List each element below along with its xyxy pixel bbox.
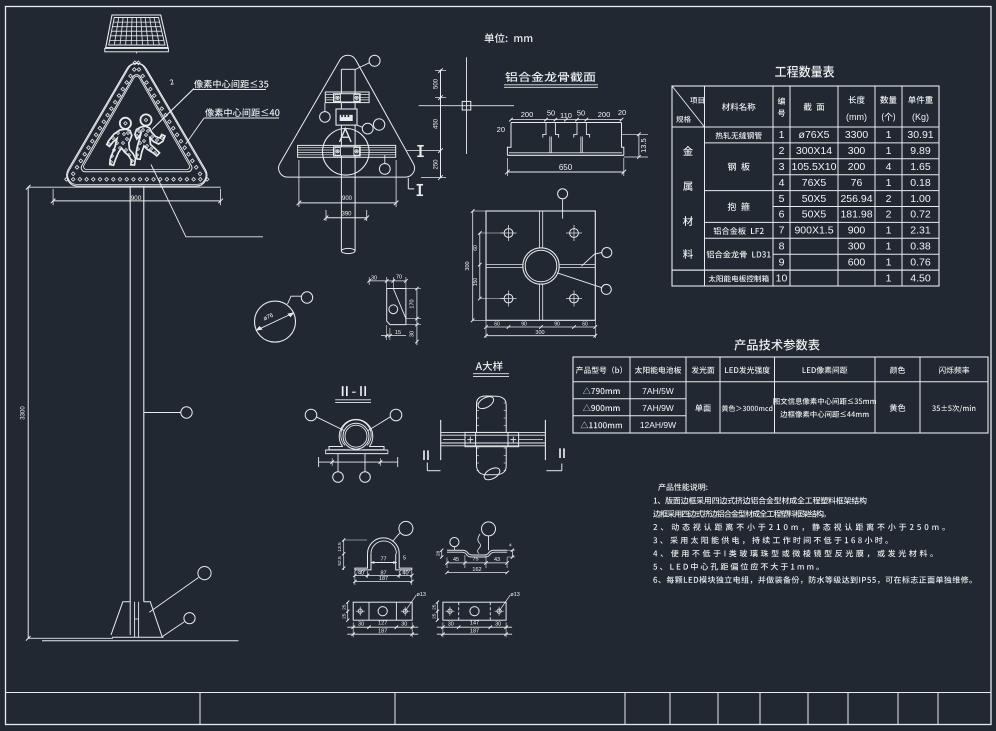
svg-text:25: 25: [342, 613, 348, 619]
svg-text:50: 50: [547, 109, 555, 118]
svg-text:2: 2: [779, 145, 785, 157]
svg-text:4: 4: [509, 543, 512, 549]
svg-text:1: 1: [886, 256, 892, 268]
svg-text:12AH/9W: 12AH/9W: [640, 420, 676, 430]
svg-text:60: 60: [494, 322, 500, 328]
svg-text:28: 28: [436, 551, 442, 557]
svg-text:147: 147: [470, 621, 479, 627]
svg-text:7: 7: [779, 225, 785, 237]
svg-text:60: 60: [582, 322, 588, 328]
svg-text:52.5: 52.5: [337, 556, 343, 566]
svg-text:187: 187: [470, 629, 479, 635]
svg-text:50X5: 50X5: [802, 193, 827, 205]
svg-text:25: 25: [431, 613, 437, 619]
svg-text:900X1.5: 900X1.5: [794, 225, 833, 237]
svg-text:2: 2: [886, 193, 892, 205]
svg-text:(Kg): (Kg): [912, 112, 929, 122]
svg-text:900: 900: [342, 196, 353, 202]
svg-text:45: 45: [453, 557, 459, 563]
svg-text:5: 5: [779, 193, 785, 205]
svg-text:30: 30: [358, 622, 364, 628]
svg-text:1: 1: [886, 177, 892, 189]
svg-text:7AH/5W: 7AH/5W: [642, 386, 674, 396]
svg-text:40: 40: [402, 571, 408, 577]
svg-text:1.00: 1.00: [910, 193, 931, 205]
svg-text:200: 200: [521, 110, 534, 119]
svg-text:43: 43: [494, 557, 500, 563]
svg-text:20: 20: [618, 108, 626, 117]
svg-text:162: 162: [472, 567, 481, 573]
svg-text:0.76: 0.76: [910, 256, 931, 268]
svg-text:900: 900: [131, 195, 142, 202]
svg-text:256.94: 256.94: [840, 193, 872, 205]
svg-text:70: 70: [396, 275, 402, 281]
svg-text:30: 30: [401, 622, 407, 628]
svg-text:500: 500: [433, 78, 439, 89]
svg-text:77: 77: [380, 557, 386, 563]
svg-text:105.5X10: 105.5X10: [792, 161, 837, 173]
svg-text:900: 900: [848, 225, 866, 237]
svg-text:170: 170: [410, 299, 416, 308]
svg-text:187: 187: [379, 576, 388, 582]
svg-text:1: 1: [886, 241, 892, 253]
svg-text:50: 50: [577, 109, 585, 118]
svg-text:7AH/9W: 7AH/9W: [642, 403, 674, 413]
svg-text:390: 390: [341, 212, 352, 218]
svg-text:4: 4: [779, 177, 785, 189]
svg-text:1: 1: [779, 129, 785, 141]
svg-text:90: 90: [554, 322, 560, 328]
svg-text:0.38: 0.38: [910, 241, 931, 253]
svg-text:90: 90: [521, 322, 527, 328]
svg-text:4.50: 4.50: [910, 272, 931, 284]
svg-text:2: 2: [886, 209, 892, 221]
svg-text:15: 15: [395, 330, 401, 336]
svg-text:450: 450: [433, 118, 439, 129]
svg-text:25: 25: [342, 604, 348, 610]
svg-text:75: 75: [472, 557, 478, 563]
svg-text:3: 3: [779, 161, 785, 173]
svg-text:(mm): (mm): [846, 112, 867, 122]
svg-text:110: 110: [560, 111, 572, 120]
svg-text:76X5: 76X5: [802, 177, 827, 189]
svg-text:50X5: 50X5: [802, 209, 827, 221]
svg-text:9: 9: [779, 256, 785, 268]
svg-text:13.5: 13.5: [639, 138, 648, 153]
svg-text:25: 25: [431, 604, 437, 610]
svg-text:200: 200: [848, 161, 866, 173]
svg-text:600: 600: [848, 256, 866, 268]
svg-text:4: 4: [886, 161, 892, 173]
svg-text:5: 5: [403, 556, 406, 562]
svg-text:150: 150: [473, 278, 479, 287]
svg-text:13.5: 13.5: [337, 542, 343, 552]
svg-text:1: 1: [886, 225, 892, 237]
svg-text:1: 1: [886, 129, 892, 141]
svg-text:250: 250: [433, 159, 439, 170]
svg-text:2.31: 2.31: [910, 225, 931, 237]
svg-text:10: 10: [776, 272, 788, 284]
svg-text:200: 200: [598, 110, 611, 119]
svg-text:40: 40: [358, 571, 364, 577]
svg-text:187: 187: [378, 629, 387, 635]
svg-text:30.91: 30.91: [907, 129, 933, 141]
svg-text:300: 300: [465, 261, 471, 270]
svg-text:ø76X5: ø76X5: [799, 129, 830, 141]
svg-text:9.89: 9.89: [910, 145, 931, 157]
svg-text:30: 30: [495, 622, 501, 628]
svg-text:3300: 3300: [21, 406, 27, 420]
svg-text:1.65: 1.65: [910, 161, 931, 173]
svg-text:1: 1: [886, 145, 892, 157]
svg-text:30: 30: [371, 276, 377, 282]
svg-text:ø13: ø13: [510, 592, 519, 598]
svg-text:1: 1: [886, 272, 892, 284]
svg-text:0.72: 0.72: [910, 209, 931, 221]
svg-text:127: 127: [378, 621, 387, 627]
svg-text:76: 76: [851, 177, 863, 189]
svg-text:30: 30: [410, 331, 416, 337]
svg-text:ø13: ø13: [416, 592, 425, 598]
svg-text:0.18: 0.18: [910, 177, 931, 189]
svg-text:650: 650: [559, 163, 573, 172]
svg-text:6: 6: [779, 209, 785, 221]
svg-text:3300: 3300: [845, 129, 869, 141]
svg-text:60: 60: [473, 245, 479, 251]
svg-text:300X14: 300X14: [796, 145, 832, 157]
svg-text:20: 20: [497, 125, 505, 134]
svg-text:300: 300: [848, 241, 866, 253]
svg-text:30: 30: [448, 622, 454, 628]
svg-text:181.98: 181.98: [840, 209, 872, 221]
svg-text:8: 8: [779, 241, 785, 253]
svg-text:300: 300: [535, 330, 544, 336]
svg-text:300: 300: [848, 145, 866, 157]
